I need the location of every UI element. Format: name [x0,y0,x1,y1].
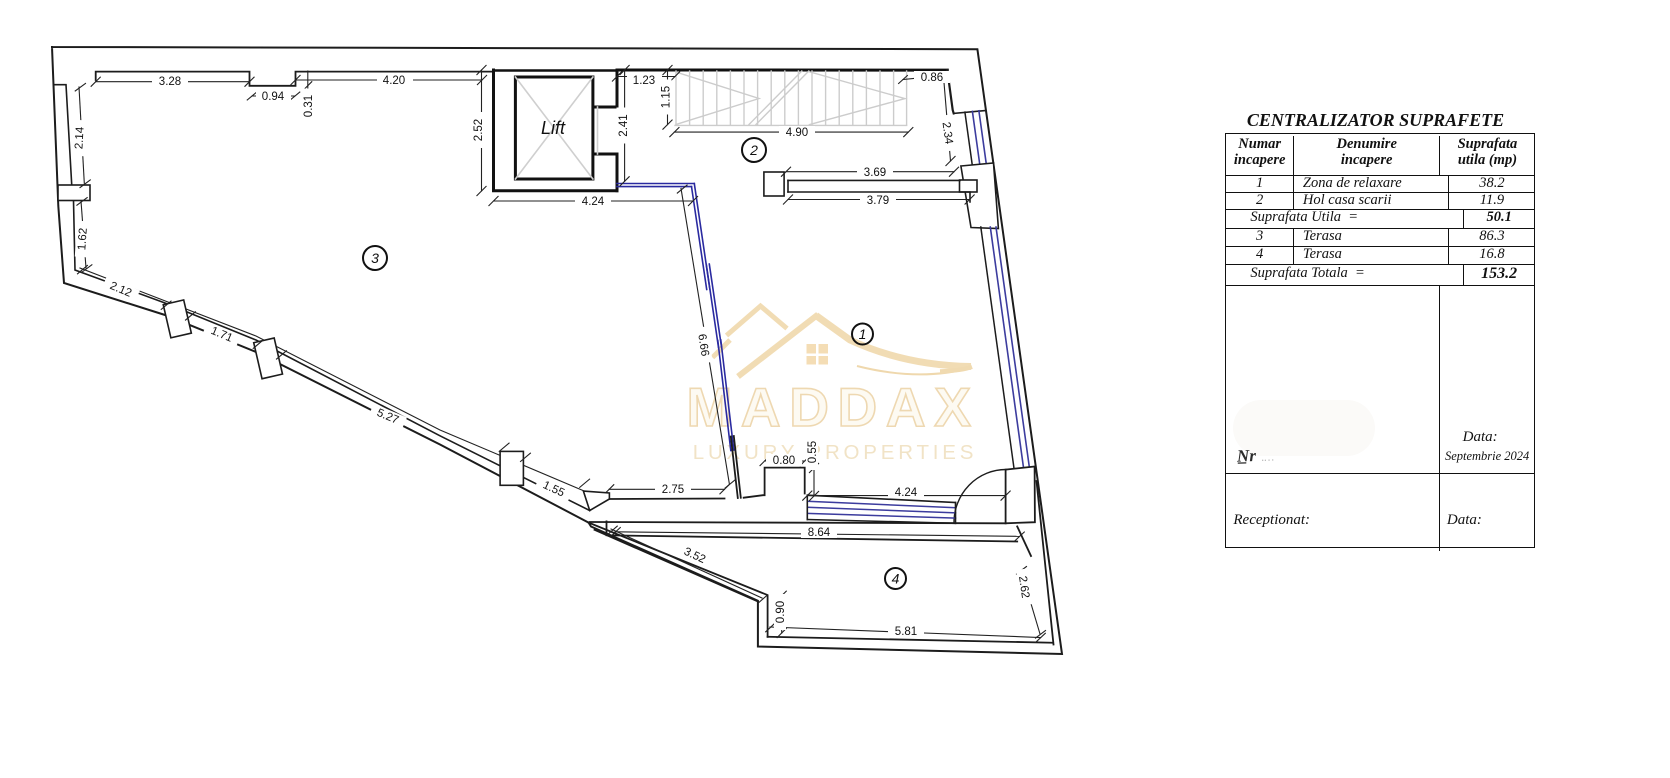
svg-text:4.20: 4.20 [383,75,405,87]
svg-text:2.52: 2.52 [473,119,485,141]
svg-text:0.55: 0.55 [807,441,819,463]
svg-text:0.31: 0.31 [303,95,315,117]
svg-text:3.28: 3.28 [159,76,181,88]
svg-text:0.94: 0.94 [262,91,285,103]
svg-text:MADDAX: MADDAX [687,376,980,438]
svg-text:0.86: 0.86 [921,72,943,84]
svg-text:5.81: 5.81 [895,626,917,638]
svg-text:8.64: 8.64 [808,527,831,539]
svg-text:4.24: 4.24 [582,196,605,208]
svg-text:1.71: 1.71 [209,325,234,345]
svg-text:1.23: 1.23 [633,75,655,87]
svg-text:3.79: 3.79 [867,195,889,207]
svg-text:4.24: 4.24 [895,487,918,499]
svg-text:2.34: 2.34 [940,121,955,145]
svg-text:2.14: 2.14 [73,126,86,150]
svg-text:2.12: 2.12 [108,280,133,300]
svg-text:Lift: Lift [541,118,566,138]
svg-text:2.41: 2.41 [618,114,630,136]
svg-text:2.75: 2.75 [662,484,684,496]
svg-text:5.27: 5.27 [375,407,400,427]
svg-text:1.15: 1.15 [661,86,673,108]
svg-text:3: 3 [371,250,379,266]
svg-text:2.62: 2.62 [1016,575,1031,599]
svg-text:1: 1 [859,326,867,342]
svg-text:6.66: 6.66 [695,333,710,357]
svg-text:0.80: 0.80 [773,455,795,467]
svg-text:3.69: 3.69 [864,167,886,179]
svg-text:1.62: 1.62 [76,227,90,250]
svg-text:4: 4 [892,571,900,587]
svg-text:4.90: 4.90 [786,127,808,139]
svg-text:0.90: 0.90 [775,601,787,623]
svg-text:2: 2 [749,142,758,158]
